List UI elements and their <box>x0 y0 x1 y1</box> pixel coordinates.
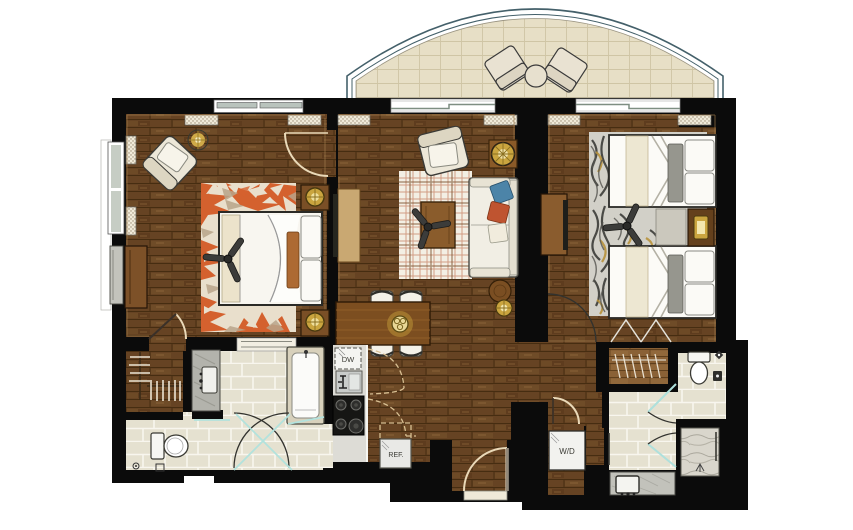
svg-text:REF.: REF. <box>388 452 403 459</box>
svg-text:W/D: W/D <box>559 447 575 456</box>
svg-text:DW: DW <box>342 355 355 364</box>
